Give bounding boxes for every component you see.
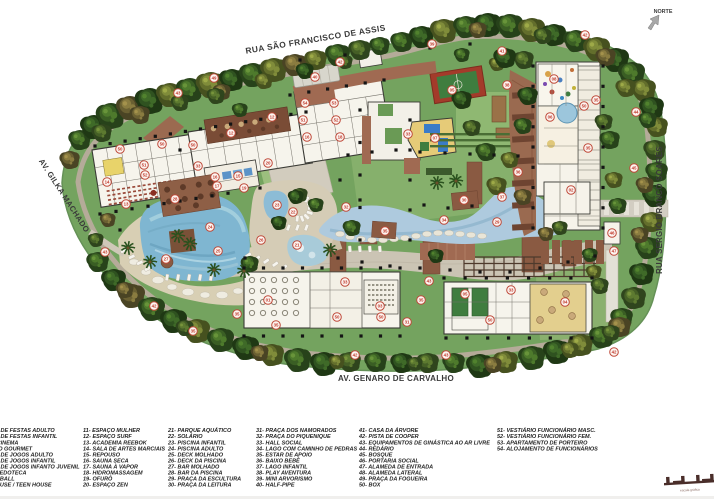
svg-text:26- DECK DA PISCINA: 26- DECK DA PISCINA (167, 458, 226, 464)
svg-text:52- VESTIÁRIO FUNCIONÁRIO FEM.: 52- VESTIÁRIO FUNCIONÁRIO FEM. (497, 433, 592, 440)
svg-text:50: 50 (191, 143, 196, 148)
svg-text:41- CASA DA ÁRVORE: 41- CASA DA ÁRVORE (358, 427, 419, 434)
svg-text:16: 16 (305, 135, 310, 140)
svg-text:20: 20 (266, 161, 271, 166)
svg-text:31: 31 (405, 320, 410, 325)
svg-text:54: 54 (303, 101, 308, 106)
svg-text:35: 35 (419, 298, 424, 303)
svg-text:17: 17 (215, 184, 220, 189)
svg-text:51: 51 (301, 118, 306, 123)
svg-text:01: 01 (266, 298, 271, 303)
svg-text:29: 29 (495, 220, 500, 225)
svg-text:27: 27 (164, 257, 169, 262)
svg-text:03: 03 (378, 304, 383, 309)
svg-text:34- LAGO COM CAMINHO DE PEDRAS: 34- LAGO COM CAMINHO DE PEDRAS (256, 446, 357, 452)
svg-text:22: 22 (291, 210, 296, 215)
svg-text:50: 50 (488, 318, 493, 323)
svg-text:02: 02 (569, 188, 574, 193)
svg-text:51- VESTIÁRIO FUNCIONÁRIO MASC: 51- VESTIÁRIO FUNCIONÁRIO MASC. (497, 427, 596, 434)
svg-text:45: 45 (632, 166, 637, 171)
svg-text:54- ALOJAMENTO DE FUNCIONÁRIOS: 54- ALOJAMENTO DE FUNCIONÁRIOS (497, 445, 598, 452)
svg-text:O GOURMET: O GOURMET (0, 446, 33, 452)
svg-text:20- ESPAÇO ZEN: 20- ESPAÇO ZEN (82, 483, 129, 489)
svg-text:28: 28 (173, 197, 178, 202)
svg-text:33: 33 (406, 132, 411, 137)
svg-text:33: 33 (196, 164, 201, 169)
svg-text:27- BAR MOLHADO: 27- BAR MOLHADO (167, 465, 220, 471)
svg-text:35: 35 (191, 329, 196, 334)
svg-text:12: 12 (270, 115, 275, 120)
svg-text:RUA SERGIO BRANCO SOARES: RUA SERGIO BRANCO SOARES (655, 146, 664, 274)
svg-text:36: 36 (516, 170, 521, 175)
svg-text:50: 50 (335, 315, 340, 320)
svg-text:50- BOX: 50- BOX (359, 483, 381, 489)
svg-text:24- PISCINA ADULTO: 24- PISCINA ADULTO (167, 446, 224, 452)
svg-text:AV. GENARO DE CARVALHO: AV. GENARO DE CARVALHO (338, 374, 454, 383)
svg-text:50: 50 (582, 104, 587, 109)
svg-text:43: 43 (176, 91, 181, 96)
svg-text:50: 50 (160, 142, 165, 147)
svg-text:52: 52 (143, 173, 148, 178)
svg-text:16- SAUNA SECA: 16- SAUNA SECA (83, 458, 129, 464)
svg-text:42: 42 (612, 350, 617, 355)
svg-text:34: 34 (442, 218, 447, 223)
svg-text:42: 42 (353, 353, 358, 358)
svg-text:12: 12 (229, 131, 234, 136)
svg-text:24: 24 (208, 225, 213, 230)
svg-text:43: 43 (427, 279, 432, 284)
svg-text:38: 38 (505, 83, 510, 88)
svg-text:05: 05 (463, 292, 468, 297)
svg-text:35: 35 (383, 229, 388, 234)
svg-text:30: 30 (462, 198, 467, 203)
svg-text:32- PRAÇA DO PIQUENIQUE: 32- PRAÇA DO PIQUENIQUE (256, 434, 331, 440)
svg-text:DE JOGOS INFANTIL: DE JOGOS INFANTIL (1, 458, 57, 464)
svg-text:35: 35 (586, 146, 591, 151)
svg-text:37: 37 (500, 195, 505, 200)
svg-text:42- PISTA DE COOPER: 42- PISTA DE COOPER (358, 434, 419, 440)
svg-text:35: 35 (274, 323, 279, 328)
svg-text:DE FESTAS INFANTIL: DE FESTAS INFANTIL (1, 434, 58, 440)
svg-text:50: 50 (379, 315, 384, 320)
svg-text:22- SOLÁRIO: 22- SOLÁRIO (167, 433, 203, 440)
svg-text:30- PRAÇA DA LEITURA: 30- PRAÇA DA LEITURA (168, 483, 231, 489)
svg-text:42: 42 (152, 304, 157, 309)
svg-text:46: 46 (610, 231, 615, 236)
svg-text:40: 40 (313, 75, 318, 80)
svg-text:42: 42 (338, 60, 343, 65)
svg-text:53: 53 (332, 101, 337, 106)
svg-text:08: 08 (552, 77, 557, 82)
svg-text:50: 50 (118, 147, 123, 152)
svg-text:35: 35 (594, 98, 599, 103)
svg-text:47: 47 (612, 249, 617, 254)
svg-text:35: 35 (235, 312, 240, 317)
svg-text:05: 05 (450, 88, 455, 93)
svg-text:26: 26 (259, 238, 264, 243)
svg-text:33: 33 (509, 288, 514, 293)
svg-text:21- PARQUE AQUÁTICO: 21- PARQUE AQUÁTICO (167, 427, 232, 434)
svg-text:51: 51 (142, 163, 147, 168)
svg-text:44: 44 (634, 110, 639, 115)
svg-text:47- ALAMEDA DE ENTRADA: 47- ALAMEDA DE ENTRADA (358, 465, 433, 471)
svg-text:42: 42 (583, 33, 588, 38)
svg-text:04: 04 (563, 300, 568, 305)
svg-text:41: 41 (500, 49, 505, 54)
svg-text:52: 52 (334, 118, 339, 123)
svg-text:12- ESPAÇO SURF: 12- ESPAÇO SURF (83, 434, 132, 440)
svg-text:19- OFURÔ: 19- OFURÔ (83, 475, 113, 483)
svg-text:18: 18 (338, 135, 343, 140)
svg-text:16: 16 (213, 175, 218, 180)
svg-text:14: 14 (105, 180, 110, 185)
svg-text:DE JOGOS INFANTO JUVENIL: DE JOGOS INFANTO JUVENIL (1, 465, 81, 471)
svg-text:07: 07 (433, 136, 438, 141)
svg-text:43- EQUIPAMENTOS DE GINÁSTICA: 43- EQUIPAMENTOS DE GINÁSTICA AO AR LIVR… (358, 439, 490, 446)
svg-text:23: 23 (275, 203, 280, 208)
svg-text:17- SAUNA À VAPOR: 17- SAUNA À VAPOR (83, 464, 138, 471)
svg-text:15: 15 (236, 174, 241, 179)
svg-text:49: 49 (212, 76, 217, 81)
svg-text:43: 43 (103, 250, 108, 255)
svg-text:19: 19 (242, 186, 247, 191)
svg-text:36- BAIXO BEBÊ: 36- BAIXO BEBÊ (256, 456, 300, 464)
svg-text:43: 43 (444, 353, 449, 358)
svg-text:37- LAGO INFANTIL: 37- LAGO INFANTIL (256, 465, 308, 471)
svg-text:39: 39 (430, 42, 435, 47)
svg-text:OUSE / TEEN HOUSE: OUSE / TEEN HOUSE (0, 483, 52, 489)
svg-text:33: 33 (343, 280, 348, 285)
svg-text:46- PORTARIA SOCIAL: 46- PORTARIA SOCIAL (358, 458, 419, 464)
svg-text:21: 21 (295, 243, 300, 248)
svg-text:44- REDÁRIO: 44- REDÁRIO (358, 445, 395, 452)
svg-text:14- SALA DE ARTES MARCIAIS: 14- SALA DE ARTES MARCIAIS (83, 446, 165, 452)
svg-text:32: 32 (344, 205, 349, 210)
svg-text:40- HALF-PIPE: 40- HALF-PIPE (255, 483, 295, 489)
svg-text:06: 06 (548, 115, 553, 120)
svg-text:NORTE: NORTE (654, 9, 673, 15)
svg-text:13: 13 (124, 202, 129, 207)
svg-text:25: 25 (216, 249, 221, 254)
